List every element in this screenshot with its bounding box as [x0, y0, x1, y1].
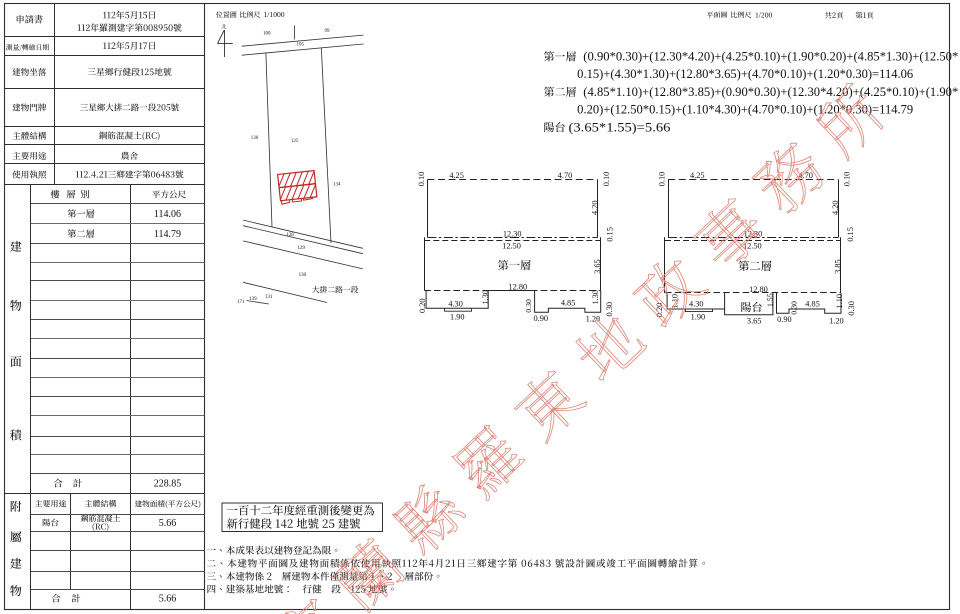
svg-text:4.30: 4.30 — [689, 300, 704, 309]
svg-text:0.90: 0.90 — [777, 315, 792, 324]
svg-text:136: 136 — [251, 136, 259, 141]
svg-text:(0.90*0.30)+(12.30*4.20)+(4.25: (0.90*0.30)+(12.30*4.20)+(4.25*0.10)+(1.… — [583, 50, 958, 64]
svg-text:114.79: 114.79 — [154, 229, 181, 240]
svg-text:4.85: 4.85 — [561, 299, 576, 308]
svg-text:4.25: 4.25 — [449, 171, 464, 180]
svg-text:0.90: 0.90 — [534, 314, 549, 323]
svg-text:3.85: 3.85 — [834, 259, 843, 274]
svg-text:4.30: 4.30 — [448, 299, 463, 308]
svg-text:100: 100 — [263, 32, 271, 37]
svg-text:0.15: 0.15 — [606, 227, 615, 242]
svg-text:1.30: 1.30 — [591, 290, 600, 305]
svg-text:0.10: 0.10 — [602, 172, 611, 187]
svg-text:99: 99 — [325, 29, 331, 34]
svg-text:114.06: 114.06 — [154, 209, 181, 220]
svg-text:(4.85*1.10)+(12.80*3.85)+(0.90: (4.85*1.10)+(12.80*3.85)+(0.90*0.30)+(12… — [583, 85, 958, 99]
svg-text:1/1000: 1/1000 — [264, 10, 285, 19]
svg-text:228.85: 228.85 — [154, 479, 182, 490]
svg-text:134: 134 — [333, 183, 341, 188]
svg-text:4.25: 4.25 — [690, 171, 705, 180]
svg-text:0.10: 0.10 — [843, 172, 852, 187]
svg-text:(3.65*1.55)=5.66: (3.65*1.55)=5.66 — [569, 120, 671, 134]
svg-text:0.30: 0.30 — [847, 301, 856, 316]
svg-text:0.30: 0.30 — [605, 302, 614, 317]
svg-text:0.30: 0.30 — [524, 299, 533, 313]
svg-text:12.80: 12.80 — [749, 285, 768, 294]
svg-text:4.20: 4.20 — [590, 200, 599, 215]
svg-text:0.15: 0.15 — [846, 227, 855, 242]
svg-text:128: 128 — [286, 233, 294, 238]
svg-text:130: 130 — [299, 273, 307, 278]
svg-text:1.10: 1.10 — [835, 294, 844, 309]
svg-text:12.30: 12.30 — [503, 230, 522, 239]
svg-text:0.10: 0.10 — [658, 172, 667, 187]
svg-text:0.15)+(4.30*1.30)+(12.80*3.65): 0.15)+(4.30*1.30)+(12.80*3.65)+(4.70*0.1… — [577, 67, 913, 81]
svg-text:4.20: 4.20 — [831, 200, 840, 215]
svg-text:0.10: 0.10 — [417, 172, 426, 187]
svg-text:5.66: 5.66 — [159, 594, 177, 605]
svg-text:4.85: 4.85 — [805, 300, 820, 309]
svg-text:12.50: 12.50 — [502, 242, 521, 251]
svg-text:3.65: 3.65 — [747, 316, 762, 325]
svg-text:125: 125 — [291, 139, 299, 144]
svg-text:1/200: 1/200 — [755, 10, 773, 19]
svg-text:129: 129 — [298, 246, 306, 251]
svg-text:1.30: 1.30 — [481, 290, 490, 305]
svg-text:1.20: 1.20 — [829, 316, 844, 325]
svg-text:4.70: 4.70 — [558, 171, 573, 180]
svg-text:1.55: 1.55 — [765, 293, 774, 307]
svg-text:3.65: 3.65 — [593, 259, 602, 274]
svg-text:105: 105 — [297, 43, 305, 48]
svg-text:5.66: 5.66 — [159, 518, 177, 529]
svg-text:131: 131 — [265, 295, 273, 300]
svg-text:1.90: 1.90 — [691, 312, 706, 321]
svg-text:1.90: 1.90 — [450, 313, 465, 322]
svg-text:171: 171 — [237, 300, 245, 305]
svg-text:0.20: 0.20 — [418, 298, 427, 313]
svg-text:0.30: 0.30 — [789, 301, 798, 315]
